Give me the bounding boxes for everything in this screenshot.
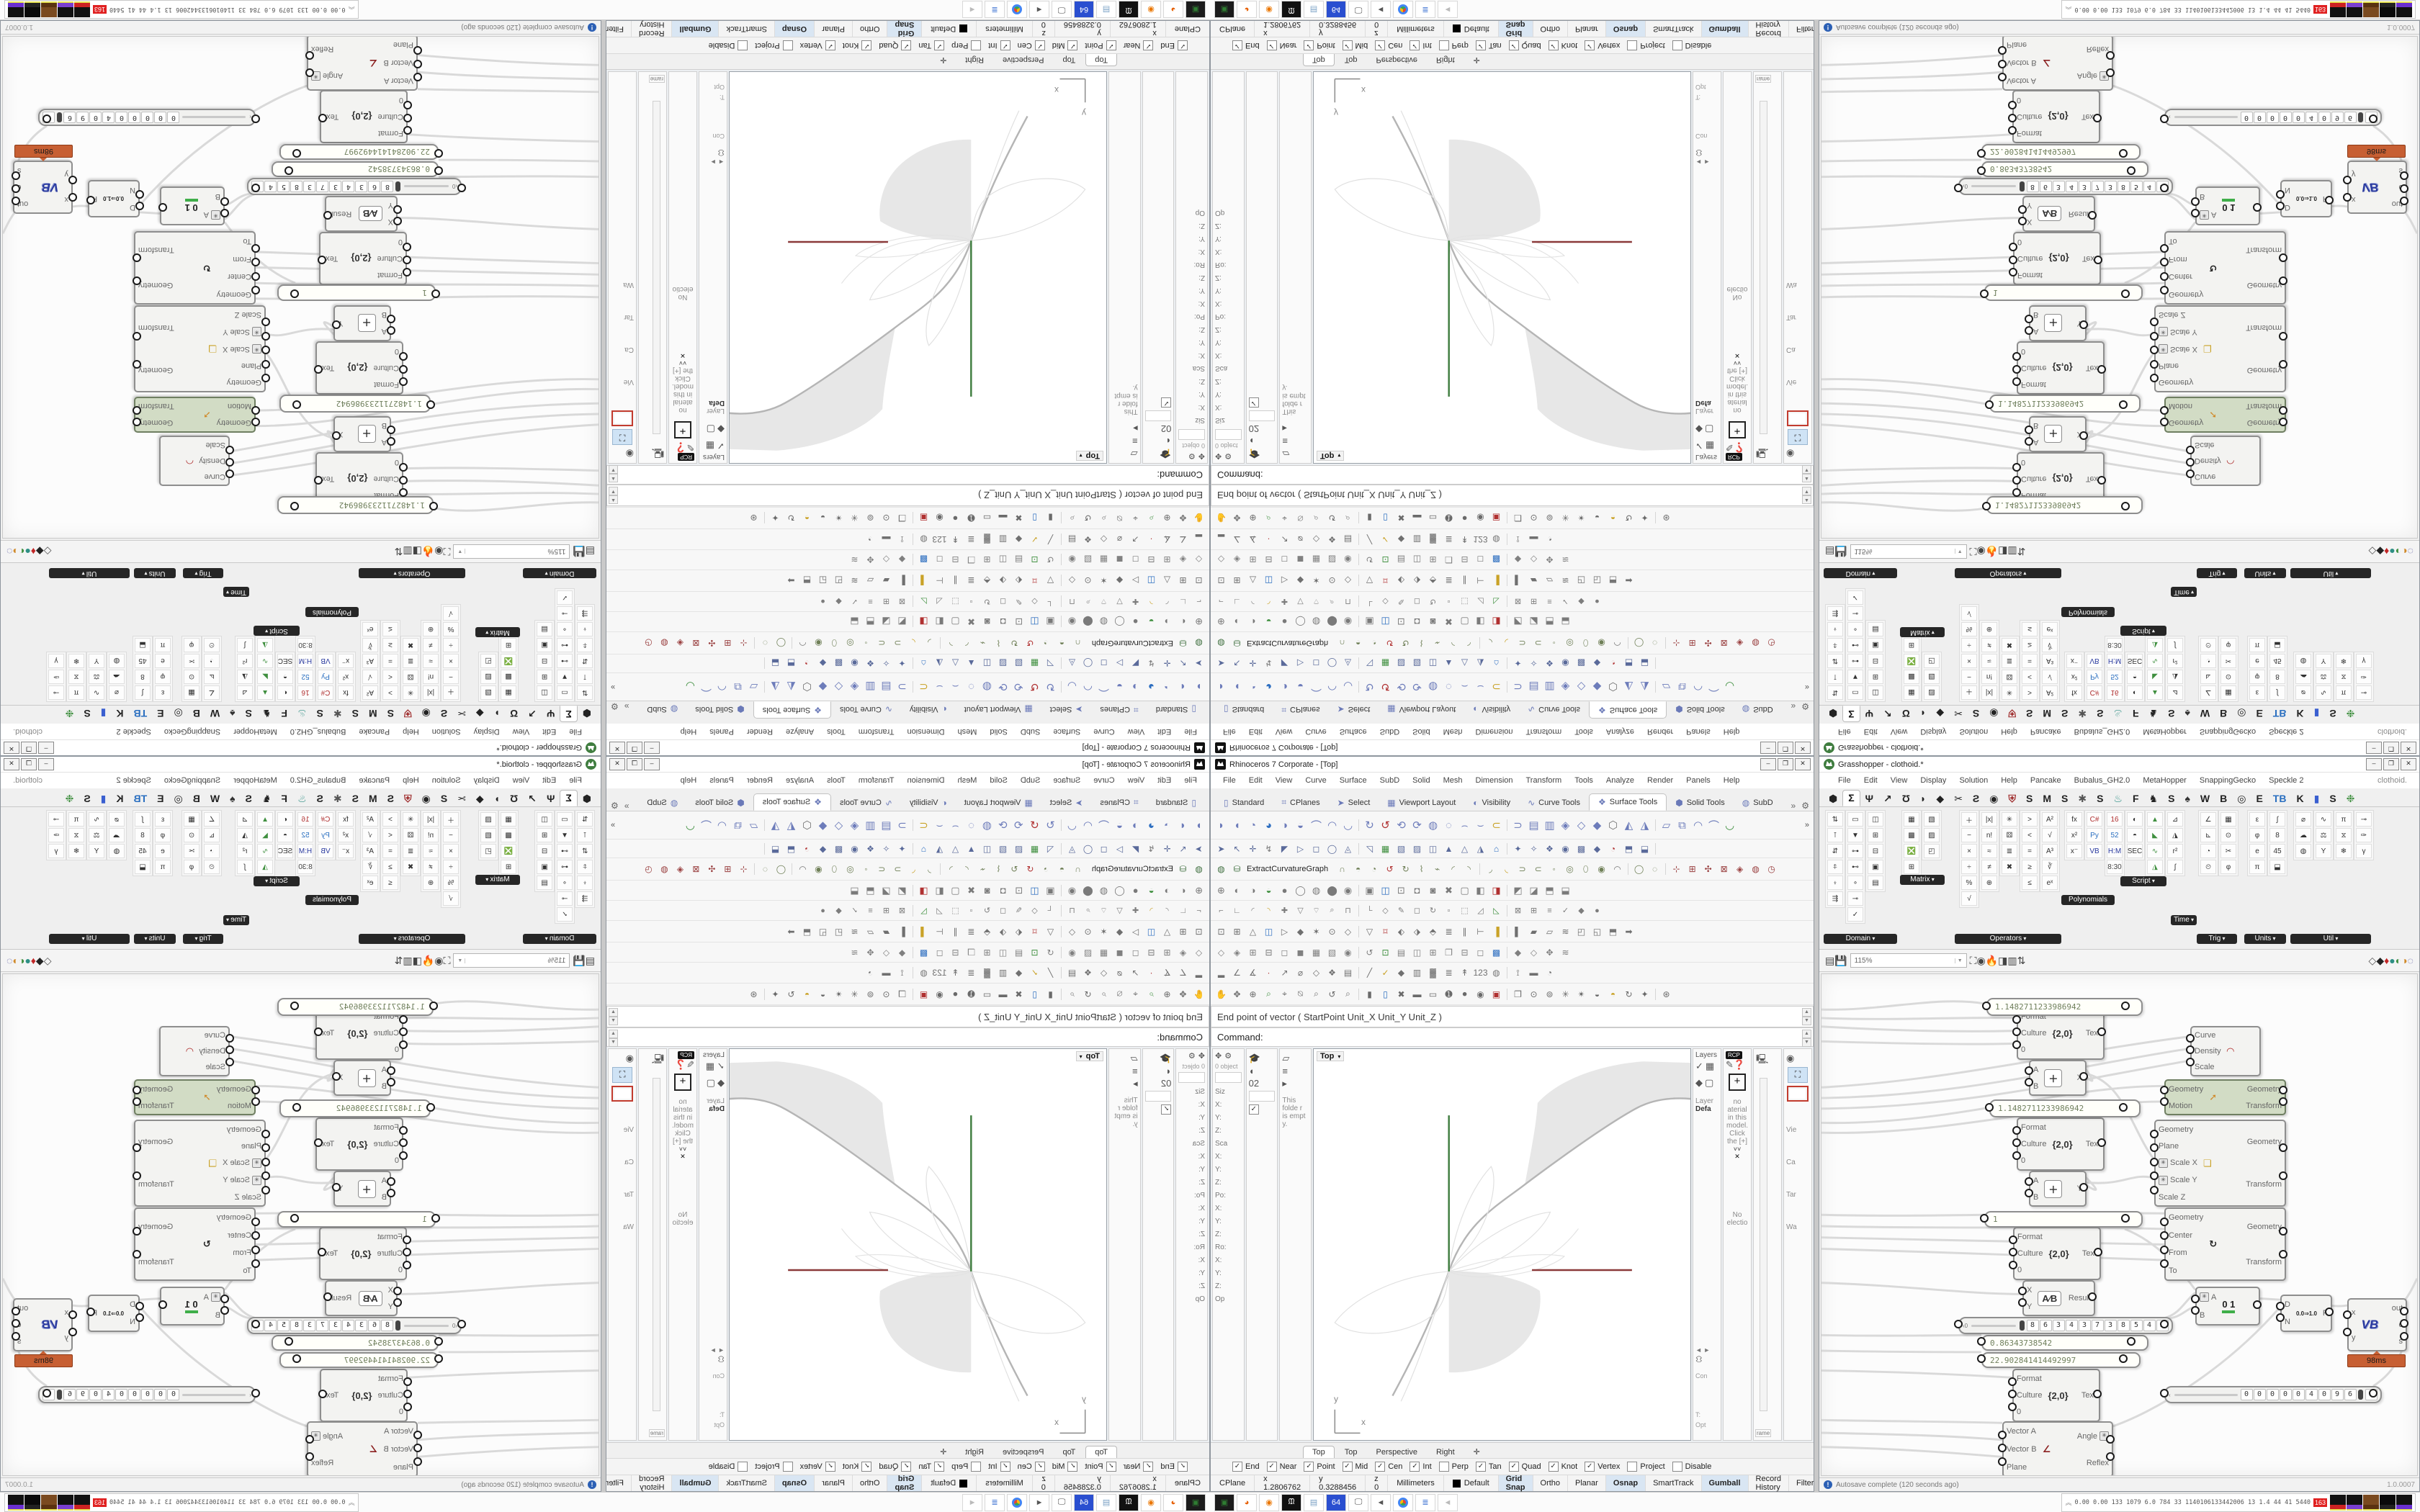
toolbar-icon[interactable]: ⬘: [1425, 574, 1440, 588]
toolbar-icon[interactable]: ≡: [1542, 904, 1557, 918]
properties-panel[interactable]: ◉ ⛶ VieCaTarWa: [1783, 71, 1812, 464]
toolbar-icon[interactable]: ⬓: [1558, 883, 1573, 898]
toolbar-icon[interactable]: ↻: [1362, 680, 1377, 694]
toolbar-icon[interactable]: ◌: [964, 818, 979, 832]
gh-component-icon[interactable]: ⬓: [2269, 860, 2285, 874]
toolbar-icon[interactable]: ◕: [1261, 680, 1276, 694]
osnap-option[interactable]: Near: [1267, 40, 1297, 50]
toolbar-icon[interactable]: ⌂: [916, 842, 931, 856]
toolbar-icon[interactable]: ◉: [847, 657, 862, 671]
rhino-menu-item[interactable]: Render: [1641, 776, 1680, 785]
gear-icon[interactable]: ⚙: [1188, 451, 1196, 461]
toolbar-icon[interactable]: ▽: [1362, 574, 1377, 588]
rhino-toolbar-tab[interactable]: ➤ Select: [1329, 701, 1379, 717]
toolbar-icon[interactable]: ⊂: [916, 818, 931, 832]
gh-component-icon[interactable]: x²: [2066, 828, 2082, 842]
gh-component-icon[interactable]: ∠: [204, 812, 220, 827]
toolbar-icon[interactable]: ⊡: [1214, 924, 1229, 939]
gh-port-pin[interactable]: [2012, 365, 2021, 374]
toolbar-icon[interactable]: ◐: [1229, 883, 1245, 898]
gh-component-icon[interactable]: ≥: [382, 638, 398, 652]
toolbar-icon[interactable]: ⌀: [1112, 966, 1127, 980]
toolbar-icon[interactable]: ⬚: [948, 595, 963, 609]
gh-component-icon[interactable]: A²: [2042, 812, 2058, 827]
gh-component-icon[interactable]: ◓: [2127, 828, 2143, 842]
toolbar-icon[interactable]: ▢: [948, 615, 963, 629]
taskbar-floppy64-icon[interactable]: 64: [1326, 1, 1346, 19]
toolbar-icon[interactable]: ❖: [1325, 532, 1340, 546]
gh-component[interactable]: XYA∕BResult: [325, 196, 398, 232]
gh-port-pin[interactable]: [387, 1078, 395, 1086]
gh-category-tab[interactable]: ⬢: [578, 791, 596, 806]
toolbar-icon[interactable]: ▌: [895, 924, 910, 939]
toolbar-icon[interactable]: ◨: [916, 883, 931, 898]
toolbar-icon[interactable]: ◝: [1461, 636, 1476, 650]
canvas-tool-icon[interactable]: ⛶: [1970, 546, 1977, 558]
toolbar-icon[interactable]: ✥: [1542, 553, 1557, 567]
palette-category-label[interactable]: Time: [223, 587, 249, 597]
props-section-label[interactable]: Wa: [1786, 281, 1809, 289]
toolbar-icon[interactable]: ✎: [1394, 904, 1409, 918]
gh-component-icon[interactable]: ⊾: [204, 670, 220, 684]
panel-icon[interactable]: ▱: [1282, 1053, 1309, 1064]
gh-category-tab[interactable]: S: [241, 791, 257, 806]
cplane-icon[interactable]: ◍: [657, 862, 672, 876]
toolbar-icon[interactable]: ◍: [1214, 862, 1229, 876]
materials-icon[interactable]: ✎: [686, 442, 694, 453]
preview-gem-icon[interactable]: ◑: [12, 546, 18, 558]
gh-menu-item[interactable]: Bubalus_GH2.0: [2068, 776, 2137, 785]
osnap-option[interactable]: Project: [755, 1462, 792, 1472]
gh-component-icon[interactable]: ⇵: [1827, 654, 1843, 668]
gh-menu-item[interactable]: Display: [1914, 727, 1953, 736]
gh-port-pin[interactable]: [2008, 114, 2017, 122]
gh-component[interactable]: AB＋Y: [2029, 305, 2087, 341]
close-icon[interactable]: ✕: [1726, 1153, 1749, 1161]
layers-toolbar-icon[interactable]: ◆: [717, 1077, 725, 1089]
gh-port-pin[interactable]: [2186, 458, 2195, 467]
toolbar-icon[interactable]: ▦: [1027, 657, 1042, 671]
rhino-toolbar-tab[interactable]: ⌗ CPlanes: [1091, 794, 1147, 811]
add-material-button[interactable]: +: [1729, 1074, 1746, 1091]
gh-port-pin[interactable]: [305, 1435, 314, 1444]
canvas-tool-icon[interactable]: 🔥: [422, 955, 434, 966]
palette-category-label[interactable]: Matrix: [1900, 627, 1945, 637]
gh-component-icon[interactable]: ≤: [382, 876, 398, 890]
gh-canvas[interactable]: FormatCulture0{2,0}TextCurveDensityScale…: [1821, 36, 2418, 539]
frame-field[interactable]: rame: [649, 75, 665, 83]
gh-menu-item[interactable]: Pancake: [2024, 727, 2068, 736]
gh-component-icon[interactable]: A²: [362, 685, 378, 700]
toolbar-icon[interactable]: ◮: [1473, 842, 1488, 856]
gh-port-pin[interactable]: [2150, 360, 2159, 369]
gh-menu-item[interactable]: Speckle 2: [2262, 776, 2310, 785]
toolbar-icon[interactable]: ⊠: [895, 904, 910, 918]
gh-port-pin[interactable]: [2160, 114, 2169, 123]
rhino-menu-item[interactable]: Curve: [1299, 727, 1332, 736]
gh-component[interactable]: CurveDensityScale◠: [2190, 436, 2261, 486]
gh-port-pin[interactable]: [12, 1307, 20, 1315]
toolbar-icon[interactable]: ▦: [1096, 945, 1111, 960]
gh-component-icon[interactable]: ⊕: [1981, 876, 1997, 890]
gh-port-pin[interactable]: [403, 1248, 411, 1256]
gh-component-icon[interactable]: H:M: [2107, 654, 2123, 668]
rhino-menu-item[interactable]: Edit: [1242, 727, 1269, 736]
gh-port-pin[interactable]: [2012, 476, 2021, 485]
toolbar-icon[interactable]: ▩: [831, 842, 846, 856]
file-icon[interactable]: ▤: [586, 955, 595, 966]
toolbar-icon[interactable]: ✶: [1096, 924, 1111, 939]
rhino-toolbar-tab[interactable]: ∿ Curve Tools: [831, 701, 901, 717]
toolbar-icon[interactable]: ◌: [1647, 862, 1662, 876]
toolbar-icon[interactable]: ◌: [1647, 636, 1662, 650]
toolbar-icon[interactable]: ◎: [843, 636, 858, 650]
rhino-menu-item[interactable]: SubD: [1373, 727, 1407, 736]
toolbar-icon[interactable]: ◻: [1128, 553, 1143, 567]
toolbar-icon[interactable]: ◙: [980, 615, 995, 629]
gh-number-slider[interactable]: ‹0000040960: [2164, 109, 2382, 126]
toolbar-icon[interactable]: ◰: [831, 574, 846, 588]
toolbar-icon[interactable]: ⌕: [1325, 904, 1340, 918]
toolbar-icon[interactable]: ⬖: [1011, 924, 1026, 939]
status-toggle[interactable]: Filter: [1789, 1475, 1821, 1491]
checkbox[interactable]: [1000, 40, 1010, 50]
gear-icon[interactable]: ⚙: [1188, 1051, 1196, 1061]
gh-component-icon[interactable]: ◫: [537, 685, 552, 700]
palette-category-label[interactable]: Script: [2120, 626, 2166, 636]
toolbar-icon[interactable]: ◔: [1245, 680, 1260, 694]
toolbar-icon[interactable]: ⊕: [1214, 615, 1229, 629]
gh-category-tab[interactable]: Σ: [1842, 706, 1860, 722]
gh-port-pin[interactable]: [2094, 1248, 2102, 1256]
gh-component[interactable]: FormatCulture0{2,0}Text: [2013, 232, 2101, 285]
taskbar-obs-icon[interactable]: ▣: [1186, 1494, 1206, 1511]
toolbar-icon[interactable]: ◫: [1378, 615, 1393, 629]
gh-component[interactable]: AB＋X: [333, 1060, 391, 1096]
gh-port-pin[interactable]: [42, 114, 51, 123]
gh-menu-item[interactable]: Edit: [1857, 727, 1884, 736]
osnap-option[interactable]: Point: [1304, 40, 1335, 50]
gh-component-icon[interactable]: √: [2042, 828, 2058, 842]
minimize-button[interactable]: –: [644, 742, 660, 754]
toolbar-icon[interactable]: ⊞: [1175, 574, 1191, 588]
gh-menu-item[interactable]: Edit: [1857, 776, 1884, 785]
checkbox-checked[interactable]: ✓: [1249, 397, 1259, 408]
toolbar-icon[interactable]: ◇: [1065, 924, 1080, 939]
status-cell[interactable]: z 0: [1032, 1475, 1054, 1491]
gh-component[interactable]: AB＋Y: [333, 1171, 391, 1207]
gh-port-pin[interactable]: [332, 1072, 341, 1081]
viewport-tab[interactable]: Top: [1085, 54, 1117, 66]
toolbar-icon[interactable]: ↺: [1362, 553, 1377, 567]
gh-category-tab[interactable]: ❉: [2341, 706, 2360, 721]
gh-port-pin[interactable]: [2009, 256, 2017, 264]
gh-menu-item[interactable]: View: [1884, 727, 1914, 736]
gh-port-pin[interactable]: [2025, 326, 2033, 335]
gh-category-tab[interactable]: ♨: [292, 791, 312, 806]
gh-component-icon[interactable]: ⊙: [184, 828, 200, 842]
gh-menu-item[interactable]: Help: [1994, 776, 2024, 785]
gh-category-tab[interactable]: ⛨: [2003, 706, 2021, 721]
gh-port-pin[interactable]: [2150, 1171, 2159, 1180]
gh-category-tab[interactable]: S: [241, 706, 257, 721]
gh-component-icon[interactable]: A³: [2042, 654, 2058, 668]
materials-icon[interactable]: ✎: [1726, 1059, 1734, 1070]
toolbar-icon[interactable]: ◨: [916, 615, 931, 629]
taskbar-rhino-icon[interactable]: ᙢ: [1119, 1, 1139, 19]
toolbar-icon[interactable]: ◆: [895, 553, 910, 567]
gh-component-icon[interactable]: ◐: [277, 812, 293, 827]
gh-category-tab[interactable]: ✱: [2073, 706, 2092, 721]
panel-strip-2[interactable]: 🎓◖02 ✓: [1142, 1048, 1175, 1441]
gh-port-pin[interactable]: [2160, 1218, 2169, 1226]
gh-menu-item[interactable]: SnappingGecko: [2193, 776, 2262, 785]
toolbar-icon[interactable]: ◜: [1160, 904, 1175, 918]
toolbar-icon[interactable]: ◫: [1261, 924, 1276, 939]
toolbar-icon[interactable]: ◉: [1558, 842, 1573, 856]
viewport-tab[interactable]: Perspective: [994, 54, 1052, 66]
history-scrollbar[interactable]: ▲▼: [609, 1008, 618, 1025]
gh-port-pin[interactable]: [220, 197, 229, 206]
gh-port-pin[interactable]: [261, 1143, 270, 1152]
gh-category-tab[interactable]: ✂: [1949, 706, 1968, 721]
gh-panel[interactable]: 1.1482711233986942: [277, 998, 434, 1016]
boxedit-field[interactable]: [1178, 1072, 1205, 1083]
toolbar-icon[interactable]: ⬒: [1605, 574, 1621, 588]
gh-component-icon[interactable]: ⊞: [1868, 828, 1883, 842]
status-toggle[interactable]: Filter: [599, 21, 631, 37]
toolbar-icon[interactable]: ⊙: [879, 987, 894, 1002]
checkbox[interactable]: [1343, 40, 1353, 50]
toolbar-icon[interactable]: ▬: [1410, 987, 1425, 1002]
toolbar-icon[interactable]: ⬯: [827, 862, 842, 876]
toolbar-icon[interactable]: ⊕: [1245, 511, 1260, 526]
gh-port-pin[interactable]: [2025, 437, 2033, 446]
toolbar-icon[interactable]: ◟: [906, 636, 921, 650]
osnap-option[interactable]: Vertex: [800, 40, 835, 50]
toolbar-icon[interactable]: ⌕: [1340, 987, 1355, 1002]
canvas-tool-icon[interactable]: ▥: [2007, 546, 2017, 558]
gh-component[interactable]: GeometryCenterFromTo↻GeometryTransform: [134, 1207, 256, 1281]
toolbar-icon[interactable]: ⬗: [995, 574, 1010, 588]
toolbar-icon[interactable]: ◈: [847, 680, 862, 694]
gh-panel[interactable]: 1.1482711233986942: [1986, 496, 2143, 514]
toolbar-icon[interactable]: ▽: [1043, 924, 1058, 939]
toolbar-icon[interactable]: ⊃: [1510, 680, 1525, 694]
toolbar-icon[interactable]: ∠: [1229, 966, 1245, 980]
gh-component[interactable]: xyVBoutcs: [13, 161, 73, 214]
toolbar-icon[interactable]: ◤: [1277, 842, 1292, 856]
gh-component-icon[interactable]: C#: [2087, 812, 2102, 827]
toolbar-icon[interactable]: ◫: [980, 657, 995, 671]
toolbar-icon[interactable]: ✋: [1214, 511, 1229, 526]
taskbar-floppy64-icon[interactable]: 64: [1074, 1, 1094, 19]
toolbar-icon[interactable]: ⟟: [1510, 532, 1525, 546]
toolbar-icon[interactable]: ✓: [1558, 595, 1573, 609]
toolbar-icon[interactable]: ↺: [1080, 987, 1095, 1002]
gh-component-icon[interactable]: ⇶: [577, 891, 593, 906]
gh-component-icon[interactable]: x²: [338, 828, 354, 842]
toolbar-icon[interactable]: ∠: [1229, 532, 1245, 546]
status-toggle[interactable]: Osnap: [1606, 21, 1646, 37]
gh-menu-item[interactable]: Display: [467, 776, 506, 785]
toolbar-icon[interactable]: ⊞: [980, 945, 995, 960]
minimize-button[interactable]: –: [1760, 758, 1776, 770]
gh-component-icon[interactable]: √: [362, 828, 378, 842]
viewport-tab[interactable]: Right: [956, 54, 992, 66]
panel-icon[interactable]: ≡: [1111, 436, 1138, 446]
gh-component-icon[interactable]: ⊸: [1847, 891, 1863, 906]
gh-component-icon[interactable]: ✂: [184, 654, 200, 668]
toolbar-icon[interactable]: ↗: [1128, 532, 1143, 546]
toolbar-icon[interactable]: ➡: [784, 574, 799, 588]
toolbar-icon[interactable]: ⊞: [1245, 553, 1260, 567]
layers-toolbar-icon[interactable]: ▢: [707, 1077, 715, 1089]
file-icon[interactable]: 💾: [1834, 546, 1847, 558]
gh-component-icon[interactable]: √: [362, 670, 378, 684]
toolbar-icon[interactable]: ⊃: [895, 818, 910, 832]
checkbox[interactable]: [1672, 1462, 1682, 1472]
toolbar-icon[interactable]: ➤: [1191, 657, 1206, 671]
taskbar-speaker-muted-icon[interactable]: ◄: [1438, 1494, 1458, 1511]
gh-component-icon[interactable]: ⏲: [2200, 638, 2216, 652]
layers-nav-buttons[interactable]: ◄ ►: [1695, 158, 1710, 166]
toolbar-icon[interactable]: ▽: [1043, 574, 1058, 588]
toolbar-icon[interactable]: ▣: [1043, 615, 1058, 629]
toolbar-icon[interactable]: ⊟: [1144, 945, 1159, 960]
rhino-toolbar-tab[interactable]: ⬢ Solid Tools: [1667, 795, 1733, 811]
gh-port-pin[interactable]: [135, 202, 144, 210]
gh-component-icon[interactable]: ÷: [443, 638, 459, 652]
gh-component-icon[interactable]: ⊷: [557, 860, 573, 874]
gh-component-icon[interactable]: r²: [2167, 844, 2183, 858]
toolbar-icon[interactable]: ▯: [1378, 987, 1393, 1002]
gh-port-pin[interactable]: [403, 1390, 412, 1398]
maximize-button[interactable]: ❐: [627, 758, 642, 770]
close-button[interactable]: ✕: [2401, 742, 2416, 754]
toolbar-icon[interactable]: ▥: [863, 818, 878, 832]
toolbar-icon[interactable]: ✶: [1096, 574, 1111, 588]
gh-component-icon[interactable]: VB: [318, 654, 333, 668]
gh-component-icon[interactable]: ⇅: [1827, 685, 1843, 700]
toolbar-icon[interactable]: ▢: [1457, 615, 1472, 629]
command-prompt[interactable]: Command: ▲▼: [1211, 465, 1814, 485]
toolbar-icon[interactable]: ◒: [1590, 511, 1605, 526]
gh-port-pin[interactable]: [2079, 320, 2088, 329]
toolbar-icon[interactable]: ▬: [1526, 966, 1541, 980]
toolbar-icon[interactable]: ↺: [1023, 862, 1038, 876]
toolbar-icon[interactable]: ⧉: [730, 680, 745, 694]
toolbar-icon[interactable]: ✚: [1128, 904, 1143, 918]
toolbar-icon[interactable]: ∥: [1457, 924, 1472, 939]
toolbar-icon[interactable]: ▣: [1362, 615, 1377, 629]
checkbox[interactable]: [1476, 1462, 1486, 1472]
gh-component-icon[interactable]: ⌀: [2295, 685, 2311, 700]
gh-panel[interactable]: 1: [1984, 1211, 2143, 1228]
checkbox[interactable]: [1476, 40, 1486, 50]
gh-port-pin[interactable]: [2088, 211, 2097, 220]
gh-component-icon[interactable]: Py: [318, 828, 333, 842]
canvas-tool-icon[interactable]: 🔥: [1986, 955, 1998, 966]
canvas-tool-icon[interactable]: ⇅: [2017, 955, 2026, 966]
close-button[interactable]: ✕: [2401, 758, 2416, 770]
gh-menu-item[interactable]: Bubalus_GH2.0: [284, 727, 353, 736]
toolbar-icon[interactable]: ▥: [1410, 532, 1425, 546]
gh-port-pin[interactable]: [2150, 1186, 2159, 1194]
gh-component-icon[interactable]: ≤: [382, 622, 398, 636]
toolbar-icon[interactable]: ◉: [1594, 862, 1609, 876]
canvas-tool-icon[interactable]: ▥: [403, 546, 412, 558]
gh-component-icon[interactable]: ∘: [1847, 876, 1863, 890]
gh-port-pin[interactable]: [2325, 1308, 2334, 1316]
gh-component-icon[interactable]: ◐: [2127, 685, 2143, 700]
gh-category-tab[interactable]: Ψ: [1860, 791, 1878, 806]
status-cell[interactable]: Millimeters: [1388, 1475, 1444, 1491]
checkbox-checked[interactable]: ✓: [1249, 1104, 1259, 1115]
gh-port-pin[interactable]: [318, 256, 326, 264]
rhino-toolbar-tab[interactable]: ◐ Visibility: [901, 701, 956, 717]
checkbox[interactable]: [971, 40, 981, 50]
gh-category-tab[interactable]: ◆: [1931, 706, 1949, 721]
gh-component-icon[interactable]: ⚄: [403, 670, 418, 684]
viewport-tab[interactable]: ✛: [931, 1446, 955, 1458]
checkbox[interactable]: [1410, 1462, 1420, 1472]
gh-category-tab[interactable]: W: [205, 791, 225, 806]
gh-panel[interactable]: 0.86343738542: [1981, 161, 2148, 177]
gh-component-icon[interactable]: ⌀: [109, 685, 125, 700]
gh-component-icon[interactable]: ▭: [557, 812, 573, 827]
checkbox[interactable]: [1232, 40, 1242, 50]
cplane-icon[interactable]: ◷: [641, 636, 656, 650]
gh-component-icon[interactable]: ⊺: [577, 828, 593, 842]
checkbox[interactable]: [1106, 40, 1116, 50]
gh-component-icon[interactable]: r²: [237, 654, 253, 668]
gh-component-icon[interactable]: ⧖: [2336, 828, 2352, 842]
gh-port-pin[interactable]: [2008, 1390, 2017, 1398]
toolbar-icon[interactable]: ◞: [922, 636, 937, 650]
toolbar-icon[interactable]: ◞: [1483, 636, 1498, 650]
gh-category-tab[interactable]: F: [276, 706, 292, 721]
rhino-menu-item[interactable]: Mesh: [951, 727, 983, 736]
gh-port-pin[interactable]: [2127, 1337, 2136, 1346]
properties-panel[interactable]: ◉ ⛶ VieCaTarWa: [608, 71, 637, 464]
gear-icon[interactable]: ⚙: [1801, 801, 1809, 811]
checkbox[interactable]: [934, 40, 944, 50]
gh-component-icon[interactable]: x²: [338, 670, 354, 684]
toolbar-icon[interactable]: ↯: [1144, 842, 1159, 856]
toolbar-icon[interactable]: ◉: [811, 636, 826, 650]
gh-component[interactable]: XYA∕BResult: [325, 1280, 398, 1316]
gh-component-icon[interactable]: ◔: [2200, 844, 2216, 858]
toolbar-icon[interactable]: ◓: [1350, 862, 1366, 876]
toolbar-icon[interactable]: ◺: [1489, 595, 1504, 609]
toolbar-icon[interactable]: ✴: [1574, 511, 1589, 526]
rhino-titlebar[interactable]: Rhinoceros 7 Corporate - [Top] – ❐ ✕: [606, 757, 1209, 773]
palette-category-label[interactable]: Time: [2171, 915, 2197, 925]
gh-category-tab[interactable]: B: [188, 706, 205, 721]
gh-component-icon[interactable]: r²: [2167, 654, 2183, 668]
rhino-toolbar-tab[interactable]: ➤ Select: [1041, 701, 1092, 717]
toolbar-icon[interactable]: ▧: [1394, 657, 1409, 671]
gh-component-icon[interactable]: ∫: [2167, 638, 2183, 652]
camera-icon[interactable]: ⛻: [717, 145, 725, 158]
gh-port-pin[interactable]: [403, 1236, 411, 1244]
toolbar-icon[interactable]: ⌕: [1096, 511, 1111, 526]
palette-category-label[interactable]: Units: [134, 568, 176, 578]
mru-command-label[interactable]: ExtractCurvatureGraph: [1092, 865, 1173, 873]
toolbar-icon[interactable]: ⌕: [1261, 511, 1276, 526]
checkbox[interactable]: [1585, 40, 1595, 50]
